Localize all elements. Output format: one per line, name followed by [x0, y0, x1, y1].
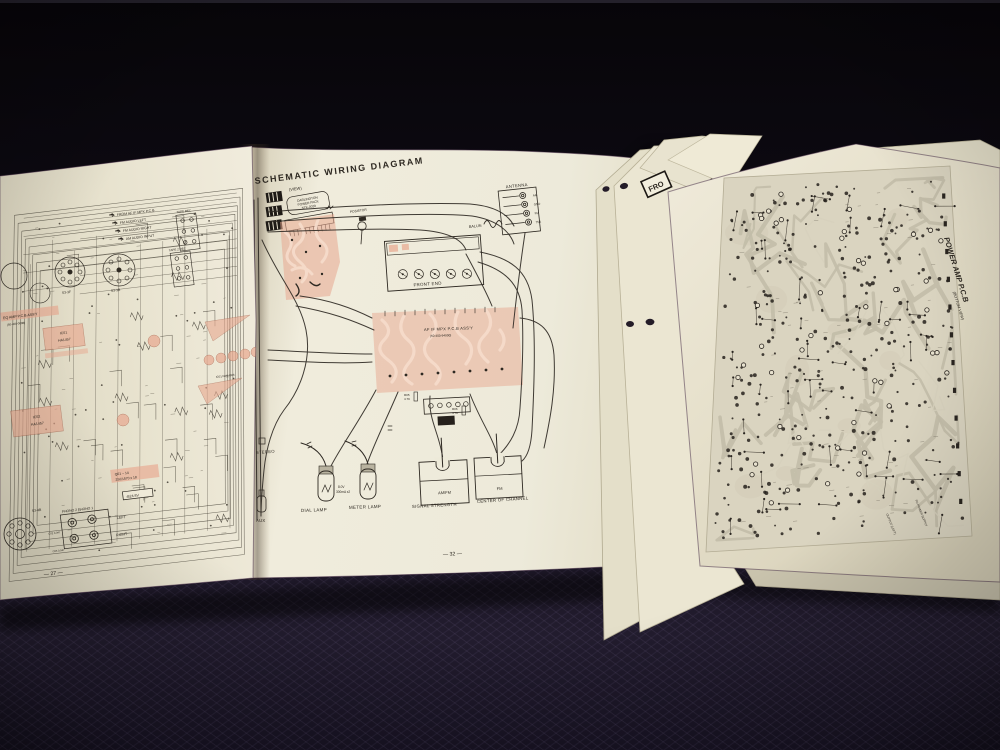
pcb-pad: [766, 303, 768, 305]
pcb-pad: [754, 270, 756, 272]
power-pcb-region: [280, 214, 340, 300]
pcb-pad: [802, 198, 805, 201]
junction-dot: [194, 213, 196, 215]
pcb-pad: [863, 489, 865, 491]
pcb-pad: [817, 214, 819, 216]
r05-value: 4.7K: [404, 397, 410, 401]
pcb-pad: [789, 260, 792, 263]
pcb-pad: [926, 344, 928, 346]
pcb-pad: [878, 218, 882, 222]
pcb-pad: [861, 431, 864, 434]
pcb-pad: [743, 432, 745, 434]
pcb-pad: [715, 512, 718, 515]
pcb-pad: [814, 195, 816, 197]
pcb-pad: [855, 409, 857, 411]
pcb-pad: [795, 379, 798, 382]
pcb-ring-pad: [778, 424, 782, 428]
pcb-pad: [888, 221, 891, 224]
pcb-pad: [764, 257, 766, 259]
pcb-pad: [892, 363, 894, 365]
pcb-pad: [804, 427, 807, 430]
pcb-pad: [850, 450, 852, 452]
pcb-pad: [761, 353, 764, 356]
pcb-ring-pad: [779, 192, 783, 196]
junction-dot: [115, 339, 117, 341]
pcb-pad: [835, 504, 837, 506]
pcb-pad: [922, 320, 926, 324]
pcb-ring-pad: [753, 462, 757, 466]
pcb-pad: [847, 224, 850, 227]
pcb-pad: [880, 337, 884, 341]
pcb-pad: [849, 338, 851, 340]
pcb-pad: [898, 257, 901, 260]
pcb-pad: [881, 243, 884, 246]
pcb-pad: [940, 215, 943, 218]
pcb-pad: [899, 319, 901, 321]
pcb-ring-pad: [755, 303, 759, 307]
pcb-pad: [875, 414, 877, 416]
pcb-pad: [818, 279, 820, 281]
pcb-pad: [910, 359, 912, 361]
pcb-pad: [792, 233, 795, 236]
pcb-pad: [751, 212, 753, 214]
pcb-pad: [942, 325, 944, 327]
pcb-pad: [900, 224, 903, 227]
pcb-pad: [919, 254, 921, 256]
punch-hole: [646, 319, 655, 325]
pcb-pad: [918, 404, 921, 407]
pcb-pad: [863, 492, 866, 495]
pcb-pad: [924, 512, 926, 514]
pcb-pad: [928, 276, 931, 279]
pcb-pad: [813, 330, 817, 334]
pcb-pad: [771, 328, 774, 331]
pcb-pad: [895, 232, 897, 234]
pcb-pad: [767, 482, 771, 486]
pcb-pad: [850, 217, 852, 219]
pcb-pad: [826, 416, 830, 420]
pcb-pad: [727, 504, 729, 506]
pcb-pad: [836, 185, 839, 188]
pcb-pad: [830, 390, 832, 392]
pcb-ring-pad: [857, 472, 861, 476]
pcb-pad: [844, 276, 847, 279]
pcb-pad: [930, 501, 933, 504]
pcb-pad: [752, 218, 755, 221]
pcb-pad: [868, 457, 871, 460]
pcb-pad: [917, 488, 919, 490]
pcb-pad: [843, 295, 846, 298]
pcb-pad: [731, 351, 733, 353]
pcb-ring-pad: [736, 375, 740, 379]
pcb-pad: [812, 434, 814, 436]
mpx-pcb-partno: (50-400-94900): [430, 333, 451, 338]
pcb-pad: [799, 503, 801, 505]
pcb-pad: [841, 257, 844, 260]
pcb-pad: [903, 478, 905, 480]
pcb-pad: [863, 358, 866, 361]
pcb-pad: [732, 229, 734, 231]
pcb-pad: [818, 503, 820, 505]
pcb-pad: [884, 208, 886, 210]
pcb-pad: [726, 448, 730, 452]
pcb-pad: [806, 340, 808, 342]
junction-dot: [121, 444, 123, 446]
junction-dot: [154, 490, 156, 492]
meter2-face: FM: [497, 486, 503, 491]
pcb-pad: [753, 373, 757, 377]
pcb-pad: [758, 413, 761, 416]
pcb-pad: [801, 463, 803, 465]
pcb-pad: [828, 434, 831, 437]
pcb-pad: [787, 219, 789, 221]
pcb-pad: [721, 530, 724, 533]
pcb-pad: [907, 439, 910, 442]
pcb-pad: [715, 522, 717, 524]
pcb-pad: [757, 436, 760, 439]
pcb-pad: [865, 292, 868, 295]
pcb-pad: [815, 209, 818, 212]
pcb-pad: [794, 424, 797, 427]
junction-dot: [208, 220, 210, 222]
pcb-pad: [885, 237, 888, 240]
pcb-pad: [849, 231, 851, 233]
junction-dot: [48, 435, 50, 437]
pcb-ring-pad: [741, 363, 745, 367]
pcb-pad: [903, 345, 905, 347]
lamp-voltage: 8.0V: [338, 485, 345, 489]
pcb-pad: [890, 373, 894, 377]
junction-dot: [226, 267, 228, 269]
pcb-pad: [940, 496, 942, 498]
junction-dot: [141, 506, 143, 508]
mpx-pcb: AF IF MPX P.C.B ASS'Y (50-400-94900): [372, 307, 523, 393]
pcb-pad: [722, 356, 725, 359]
pcb-ring-pad: [930, 351, 934, 355]
pcb-pad: [829, 198, 831, 200]
pcb-pad: [853, 369, 855, 371]
dial-lamp-label: DIAL LAMP: [301, 507, 327, 513]
pcb-pad: [886, 467, 888, 469]
pcb-pad: [911, 480, 915, 484]
pcb-edge-pin: [958, 471, 961, 476]
pcb-pad: [883, 214, 886, 217]
pcb-pad: [907, 334, 909, 336]
pcb-pad: [743, 221, 746, 224]
pcb-pad: [906, 425, 909, 428]
pcb-edge-pin: [947, 277, 950, 282]
pcb-ring-pad: [769, 501, 773, 505]
pcb-pad: [937, 502, 939, 504]
pcb-pad: [807, 355, 809, 357]
pcb-pad: [761, 486, 763, 488]
pcb-pad: [880, 237, 883, 240]
junction-dot: [186, 320, 188, 322]
pcb-pad: [740, 379, 743, 382]
pcb-pad: [951, 445, 955, 449]
pcb-pad: [822, 192, 824, 194]
pcb-pad: [845, 191, 849, 195]
pcb-ring-pad: [861, 261, 865, 265]
pcb-pad: [810, 396, 812, 398]
pcb-pad: [784, 239, 786, 241]
pcb-pad: [761, 318, 763, 320]
junction-dot: [42, 286, 44, 288]
pcb-ring-pad: [911, 232, 915, 236]
pcb-pad: [948, 347, 952, 351]
pcb-pad: [911, 321, 914, 324]
pcb-pad: [761, 248, 763, 250]
pcb-pad: [870, 411, 872, 413]
pcb-pad: [730, 432, 733, 435]
junction-dot: [78, 446, 80, 448]
pcb-pad: [800, 327, 802, 329]
pcb-pad: [843, 396, 845, 398]
pcb-pad: [939, 461, 941, 463]
junction-dot: [46, 288, 48, 290]
pcb-pad: [835, 341, 838, 344]
pcb-ring-pad: [769, 370, 773, 374]
pcb-pad: [760, 240, 762, 242]
pcb-ring-pad: [766, 209, 770, 213]
junction-dot: [101, 384, 103, 386]
pcb-pad: [882, 496, 884, 498]
pcb-pad: [815, 477, 818, 480]
pcb-pad: [874, 475, 876, 477]
pcb-pad: [827, 350, 830, 353]
pcb-pad: [811, 210, 813, 212]
antenna-terminal: GND: [533, 202, 541, 207]
pcb-edge-pin: [956, 443, 959, 448]
pcb-pad: [779, 419, 781, 421]
pcb-pad: [732, 436, 735, 439]
pcb-pad: [891, 410, 894, 413]
pcb-pad: [916, 237, 919, 240]
pcb-pad: [899, 204, 901, 206]
pcb-pad: [934, 474, 936, 476]
photograph-of-schematic-pages: SCHEMATIC WIRING DIAGRAM (VIEW) DARLINGT…: [0, 0, 1000, 750]
pcb-pad: [733, 277, 736, 280]
pcb-pad: [761, 511, 763, 513]
pcb-pad: [776, 231, 779, 234]
pcb-pad: [742, 418, 744, 420]
pcb-ring-pad: [800, 348, 804, 352]
pcb-pad: [866, 464, 868, 466]
pcb-pad: [785, 257, 787, 259]
pcb-pad: [834, 444, 836, 446]
aux-label: AUX: [256, 518, 266, 523]
pcb-pad: [875, 349, 878, 352]
pcb-pad: [781, 532, 784, 535]
pcb-pad: [778, 260, 781, 263]
junction-dot: [41, 320, 43, 322]
junction-dot: [98, 549, 100, 551]
pcb-pad: [756, 248, 759, 251]
pcb-ring-pad: [809, 333, 813, 337]
pcb-pad: [814, 245, 817, 248]
pcb-ring-pad: [840, 236, 844, 240]
pcb-pad: [867, 433, 869, 435]
pcb-ring-pad: [945, 371, 949, 375]
pcb-pad: [728, 455, 731, 458]
pcb-pad: [819, 417, 821, 419]
pcb-pad: [858, 320, 862, 324]
pcb-pad: [894, 370, 896, 372]
pcb-pad: [906, 214, 908, 216]
pcb-pad: [889, 451, 891, 453]
junction-dot: [204, 407, 206, 409]
page-number-32: — 32 —: [443, 551, 463, 558]
pcb-pad: [811, 195, 813, 197]
pcb-pad: [766, 510, 769, 513]
pcb-edge-pin: [950, 332, 953, 337]
pcb-pad: [927, 336, 930, 339]
pcb-pad: [947, 395, 949, 397]
pcb-pad: [772, 226, 775, 229]
pcb-pad: [872, 438, 875, 441]
meter1-face: AM/FM: [438, 490, 451, 496]
pcb-pad: [757, 510, 761, 514]
pcb-pad: [848, 195, 850, 197]
pcb-pad: [755, 323, 757, 325]
pcb-pad: [801, 414, 803, 416]
pcb-pad: [941, 514, 943, 516]
pcb-pad: [845, 314, 847, 316]
pcb-pad: [887, 260, 890, 263]
pcb-pad: [845, 246, 847, 248]
pcb-ring-pad: [847, 207, 851, 211]
pcb-pad: [804, 294, 807, 297]
pcb-pad: [893, 340, 896, 343]
pcb-pad: [787, 244, 790, 247]
pcb-pad: [741, 224, 743, 226]
pcb-pad: [846, 318, 849, 321]
pcb-ring-pad: [928, 228, 932, 232]
pcb-pad: [857, 316, 859, 318]
pcb-pad: [819, 383, 822, 386]
pcb-pad: [802, 452, 806, 456]
junction-dot: [226, 504, 228, 506]
pcb-pad: [805, 186, 807, 188]
pcb-pad: [890, 331, 893, 334]
pcb-pad: [804, 379, 806, 381]
pcb-pad: [950, 326, 952, 328]
pcb-pad: [830, 464, 832, 466]
lamp-current: 300mA x2: [336, 490, 350, 494]
right-page-diagram: POWER AMP P.C.B (BOTTOM VIEW) OUTPUT (LE…: [706, 166, 972, 552]
pcb-pad: [785, 376, 787, 378]
pcb-pad: [762, 290, 765, 293]
junction-dot: [52, 441, 54, 443]
pcb-edge-pin: [951, 360, 954, 365]
pcb-pad: [755, 534, 759, 538]
pcb-pad: [750, 193, 754, 197]
pcb-pad: [872, 431, 876, 435]
pcb-pad: [851, 396, 854, 399]
pcb-pad: [832, 345, 835, 348]
transistor: [117, 414, 129, 426]
pcb-edge-pin: [954, 416, 957, 421]
pcb-pad: [842, 469, 844, 471]
pcb-pad: [735, 403, 739, 407]
pcb-pad: [844, 363, 846, 365]
pcb-pad: [798, 357, 800, 359]
pcb-pad: [809, 442, 813, 446]
pcb-pad: [764, 491, 768, 495]
pcb-pad: [743, 485, 747, 489]
pcb-pad: [921, 268, 924, 271]
pcb-pad: [947, 478, 949, 480]
pcb-pad: [763, 452, 765, 454]
pcb-pad: [803, 373, 805, 375]
pcb-pad: [766, 294, 769, 297]
pcb-pad: [867, 322, 871, 326]
pcb-pad: [732, 385, 734, 387]
pcb-pad: [784, 250, 786, 252]
pcb-pad: [950, 439, 952, 441]
pcb-pad: [882, 495, 884, 497]
pcb-pad: [756, 402, 759, 405]
pcb-pad: [767, 270, 769, 272]
pcb-pad: [781, 322, 784, 325]
pcb-pad: [939, 473, 941, 475]
pcb-pad: [778, 204, 780, 206]
pcb-pad: [747, 382, 751, 386]
pcb-pad: [938, 277, 942, 281]
pcb-pad: [780, 454, 783, 457]
pcb-pad: [925, 349, 927, 351]
pcb-ring-pad: [935, 350, 939, 354]
pcb-pad: [792, 437, 795, 440]
pcb-pad: [743, 451, 745, 453]
pcb-edge-pin: [953, 388, 956, 393]
pcb-pad: [732, 449, 735, 452]
pcb-ring-pad: [873, 379, 877, 383]
pcb-pad: [779, 255, 781, 257]
pcb-pad: [843, 272, 846, 275]
pcb-pad: [849, 350, 852, 353]
pcb-pad: [783, 202, 787, 206]
pcb-pad: [836, 464, 839, 467]
pcb-pad: [938, 532, 940, 534]
pcb-pad: [937, 228, 940, 231]
junction-dot: [175, 315, 177, 317]
pcb-pad: [834, 495, 836, 497]
pcb-pad: [845, 235, 848, 238]
pcb-pad: [845, 361, 847, 363]
pcb-pad: [824, 337, 827, 340]
pcb-pad: [865, 281, 868, 284]
pcb-pad: [798, 298, 800, 300]
pcb-pad: [796, 488, 800, 492]
pcb-pad: [909, 313, 911, 315]
pcb-pad: [728, 519, 731, 522]
pcb-pad: [930, 181, 932, 183]
pcb-pad: [867, 216, 871, 220]
pcb-pad: [731, 468, 733, 470]
pcb-pad: [759, 384, 761, 386]
junction-dot: [153, 529, 155, 531]
pcb-pad: [912, 383, 914, 385]
pcb-pad: [821, 378, 823, 380]
junction-dot: [231, 227, 233, 229]
pcb-pad: [769, 257, 771, 259]
pcb-pad: [870, 355, 872, 357]
pcb-pad: [944, 377, 946, 379]
pcb-pad: [832, 517, 835, 520]
junction-dot: [119, 344, 121, 346]
pcb-pad: [909, 341, 911, 343]
